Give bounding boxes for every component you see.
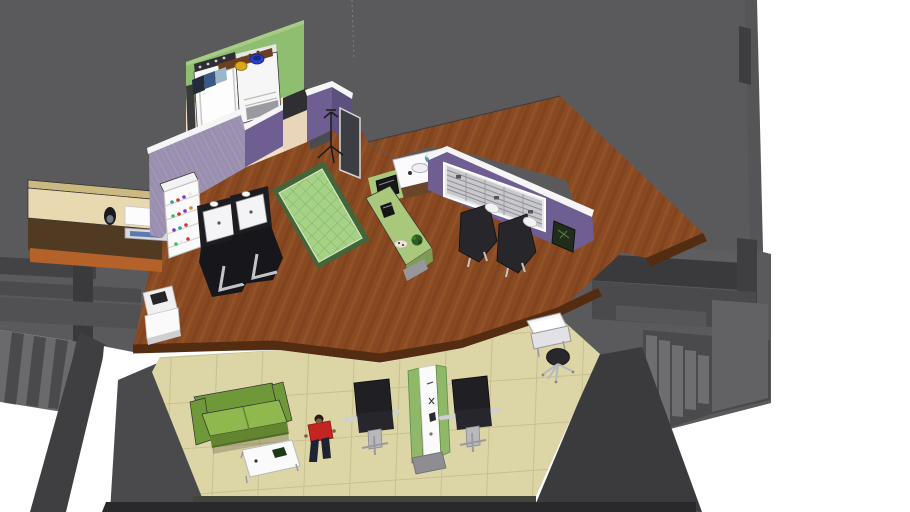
product-bottle	[180, 240, 184, 244]
bottom-dark-strip	[102, 502, 696, 512]
desk-phone-dial	[107, 215, 114, 223]
product-bottle	[189, 206, 193, 210]
person-hand	[304, 434, 308, 438]
yellow-bowl	[235, 62, 247, 71]
stool-caster	[542, 374, 545, 377]
sink-drain	[217, 221, 220, 224]
stair-tread	[672, 345, 683, 417]
desk-plant-leaf	[418, 240, 422, 244]
counter-sink	[412, 164, 428, 173]
right-pillar-inset	[739, 26, 751, 85]
blue-bowl-inner	[253, 56, 261, 61]
stair-tread	[698, 355, 709, 404]
product-bottle	[176, 198, 180, 202]
reception-desk	[28, 180, 168, 272]
product-bottle	[186, 237, 190, 241]
stair-side-panel	[712, 300, 768, 412]
product-bottle	[174, 242, 178, 246]
snack-plate	[395, 240, 408, 248]
sink-figurine	[408, 171, 412, 175]
cubby-item	[528, 210, 533, 214]
glass-door	[340, 108, 360, 178]
washer-dial	[215, 60, 218, 63]
stair-tread	[685, 350, 696, 410]
washer-dial	[199, 66, 202, 69]
stool-seat	[547, 349, 570, 366]
washer-dial	[207, 63, 210, 66]
product-bottle	[183, 209, 187, 213]
washer-dial	[223, 57, 226, 60]
salon-3d-model	[0, 0, 910, 512]
chair-backrest	[354, 379, 392, 416]
neck-rest	[210, 202, 218, 207]
person-face	[316, 419, 322, 424]
desk-plant	[412, 235, 423, 246]
cubby-item	[456, 175, 461, 179]
model-viewport[interactable]	[0, 0, 910, 512]
neck-rest	[242, 192, 250, 197]
chair-backrest	[452, 376, 490, 413]
desk-plant-leaf	[412, 236, 416, 240]
product-bottle	[184, 223, 188, 227]
product-bottle	[177, 212, 181, 216]
person-hand	[332, 429, 336, 433]
product-bottle	[178, 226, 182, 230]
person-torso	[308, 421, 333, 442]
product-bottle	[172, 228, 176, 232]
stool-caster	[555, 381, 558, 384]
stool-caster	[572, 371, 575, 374]
product-bottle	[182, 195, 186, 199]
sink-drain	[249, 210, 252, 213]
table-item	[254, 459, 257, 462]
product-bottle	[171, 214, 175, 218]
plate-item	[398, 242, 400, 244]
bottle-glyph	[429, 432, 432, 435]
plate-item	[402, 244, 404, 246]
product-bottle	[170, 200, 174, 204]
cubby-item	[494, 196, 499, 200]
product-bottle	[188, 192, 192, 196]
